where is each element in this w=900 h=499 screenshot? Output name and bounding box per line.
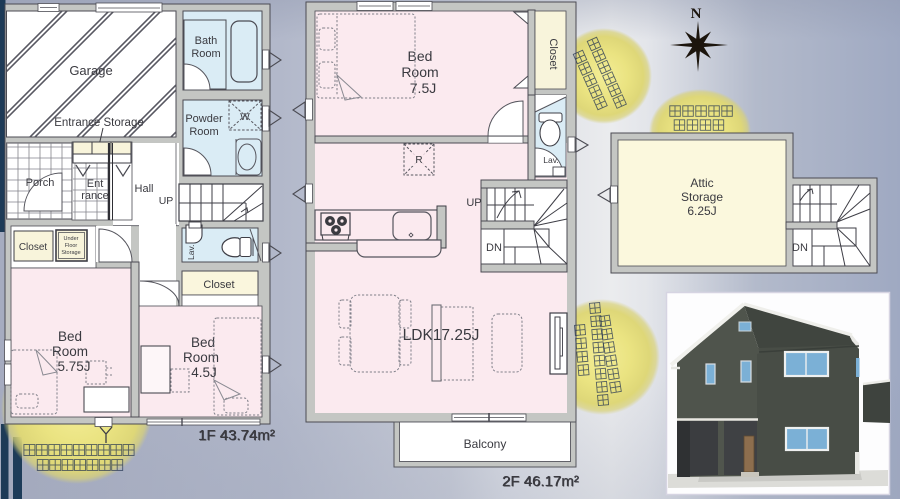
svg-text:7.5J: 7.5J [410,80,436,96]
svg-text:Bath: Bath [195,35,218,47]
svg-text:Lav.: Lav. [543,155,558,165]
svg-text:UP: UP [466,197,481,209]
svg-text:Room: Room [401,64,438,80]
svg-text:UP: UP [159,195,174,207]
svg-text:Entrance Storage: Entrance Storage [54,117,144,129]
svg-text:Closet: Closet [19,242,48,253]
svg-text:Porch: Porch [26,177,55,189]
svg-text:Room: Room [189,126,218,138]
svg-text:rance: rance [81,190,109,202]
svg-text:Attic: Attic [690,176,713,190]
svg-text:Bed: Bed [58,329,82,344]
svg-text:Lav.: Lav. [186,245,196,260]
svg-text:Room: Room [191,48,220,60]
svg-text:Closet: Closet [203,279,234,291]
svg-text:Balcony: Balcony [464,437,507,451]
svg-text:W: W [240,112,250,123]
svg-text:2F 46.17m²: 2F 46.17m² [502,473,579,490]
svg-text:Storage: Storage [681,190,723,204]
svg-text:R: R [415,155,422,166]
svg-text:Garage: Garage [69,63,112,78]
svg-text:N: N [691,6,702,22]
svg-text:Floor: Floor [65,243,78,249]
svg-text:6.25J: 6.25J [687,204,716,218]
svg-text:Hall: Hall [135,183,154,195]
svg-text:Under: Under [64,236,79,242]
svg-text:Ent: Ent [87,178,104,190]
svg-text:Storage: Storage [61,250,80,256]
svg-text:1F 43.74m²: 1F 43.74m² [198,427,275,444]
svg-text:DN: DN [792,242,808,254]
svg-text:DN: DN [486,242,502,254]
svg-text:Closet: Closet [547,38,559,69]
svg-text:Bed: Bed [408,48,433,64]
svg-text:Bed: Bed [191,335,215,350]
svg-text:4.5J: 4.5J [191,365,217,380]
svg-text:Powder: Powder [185,113,223,125]
